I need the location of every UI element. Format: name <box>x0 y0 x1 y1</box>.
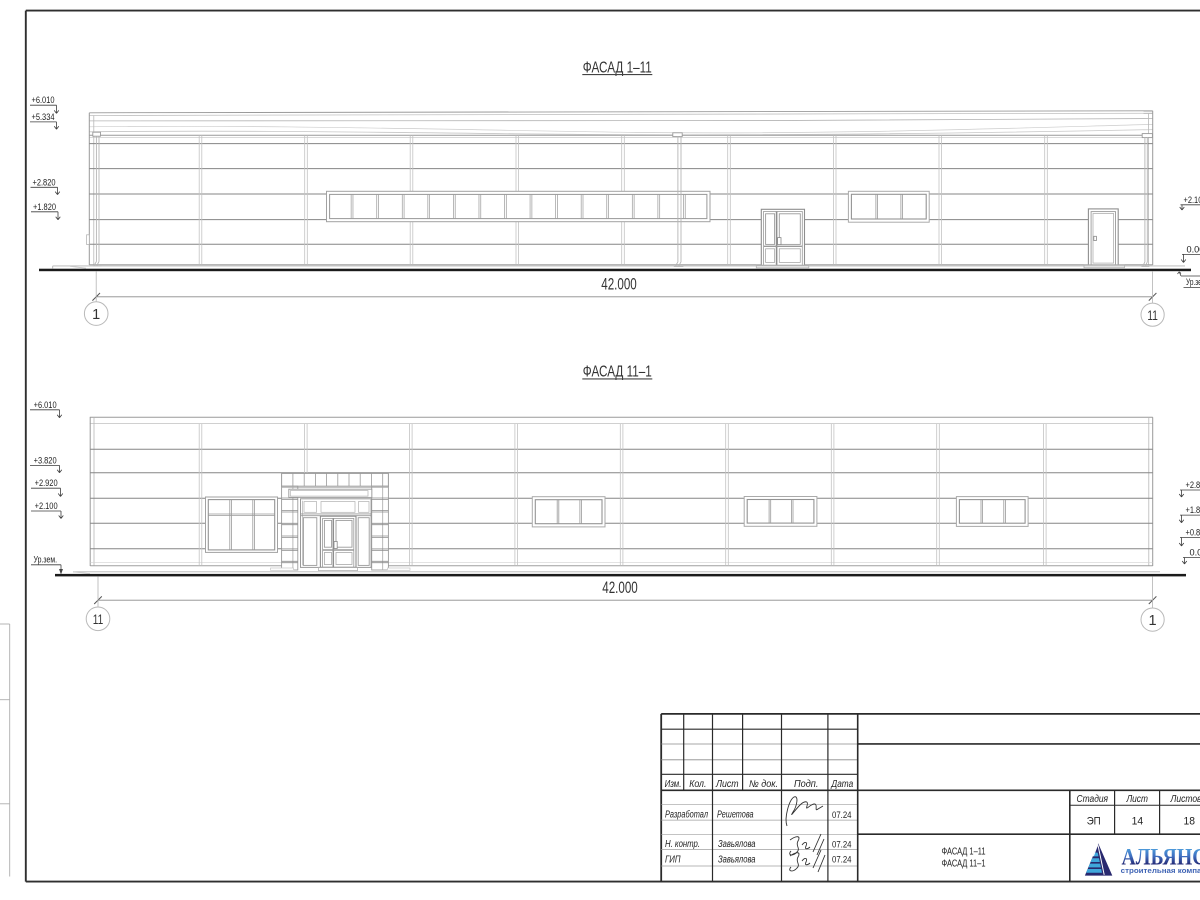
svg-text:+5.334: +5.334 <box>32 112 56 123</box>
svg-text:1: 1 <box>1149 613 1157 629</box>
svg-text:Лист: Лист <box>1126 794 1148 805</box>
svg-text:Листов: Листов <box>1170 794 1200 805</box>
svg-text:+6.010: +6.010 <box>32 95 55 106</box>
svg-text:+1.820: +1.820 <box>1186 505 1200 516</box>
svg-text:18: 18 <box>1184 816 1196 828</box>
svg-text:+2.920: +2.920 <box>35 478 58 489</box>
svg-text:Изм.: Изм. <box>665 779 682 790</box>
svg-text:+3.820: +3.820 <box>34 455 57 466</box>
svg-text:11: 11 <box>93 612 104 627</box>
svg-text:Н. контр.: Н. контр. <box>665 839 700 850</box>
svg-text:ФАСАД 11–1: ФАСАД 11–1 <box>942 859 986 870</box>
svg-text:Завьялова: Завьялова <box>718 854 756 865</box>
svg-text:ФАСАД 1–11: ФАСАД 1–11 <box>583 59 652 76</box>
svg-text:Завьялова: Завьялова <box>718 839 756 850</box>
svg-text:07.24: 07.24 <box>832 810 852 821</box>
svg-text:Подп.: Подп. <box>794 779 818 790</box>
svg-text:07.24: 07.24 <box>832 839 852 850</box>
svg-text:строительная компания: строительная компания <box>1121 866 1200 875</box>
svg-text:07.24: 07.24 <box>832 855 852 866</box>
svg-text:0.000: 0.000 <box>1190 548 1200 559</box>
svg-text:ФАСАД 11–1: ФАСАД 11–1 <box>583 364 652 381</box>
svg-text:Разработал: Разработал <box>665 810 708 821</box>
svg-text:Решетова: Решетова <box>717 810 754 821</box>
svg-text:11: 11 <box>1147 308 1158 323</box>
svg-text:Кол.: Кол. <box>689 779 706 790</box>
svg-text:42.000: 42.000 <box>602 579 638 597</box>
svg-text:Стадия: Стадия <box>1077 794 1109 805</box>
svg-text:Дата: Дата <box>831 779 854 790</box>
svg-text:1: 1 <box>92 307 100 323</box>
svg-text:42.000: 42.000 <box>601 275 637 293</box>
svg-text:14: 14 <box>1132 816 1144 828</box>
svg-text:+2.100: +2.100 <box>1184 195 1200 206</box>
svg-text:+6.010: +6.010 <box>34 400 57 411</box>
svg-text:0.000: 0.000 <box>1187 244 1200 255</box>
svg-text:ГИП: ГИП <box>665 854 681 865</box>
svg-text:+2.820: +2.820 <box>33 177 56 188</box>
svg-text:+2.100: +2.100 <box>35 501 58 512</box>
svg-text:+1.820: +1.820 <box>33 202 56 213</box>
svg-text:+2.820: +2.820 <box>1186 480 1200 491</box>
svg-text:Лист: Лист <box>715 779 738 790</box>
svg-text:Ур.зем.: Ур.зем. <box>34 555 58 565</box>
svg-text:ФАСАД 1–11: ФАСАД 1–11 <box>942 847 986 858</box>
svg-text:Ур.зем.: Ур.зем. <box>1186 277 1200 287</box>
svg-text:+0.820: +0.820 <box>1186 528 1200 539</box>
svg-text:№ док.: № док. <box>749 779 778 790</box>
svg-text:ЭП: ЭП <box>1087 816 1101 828</box>
